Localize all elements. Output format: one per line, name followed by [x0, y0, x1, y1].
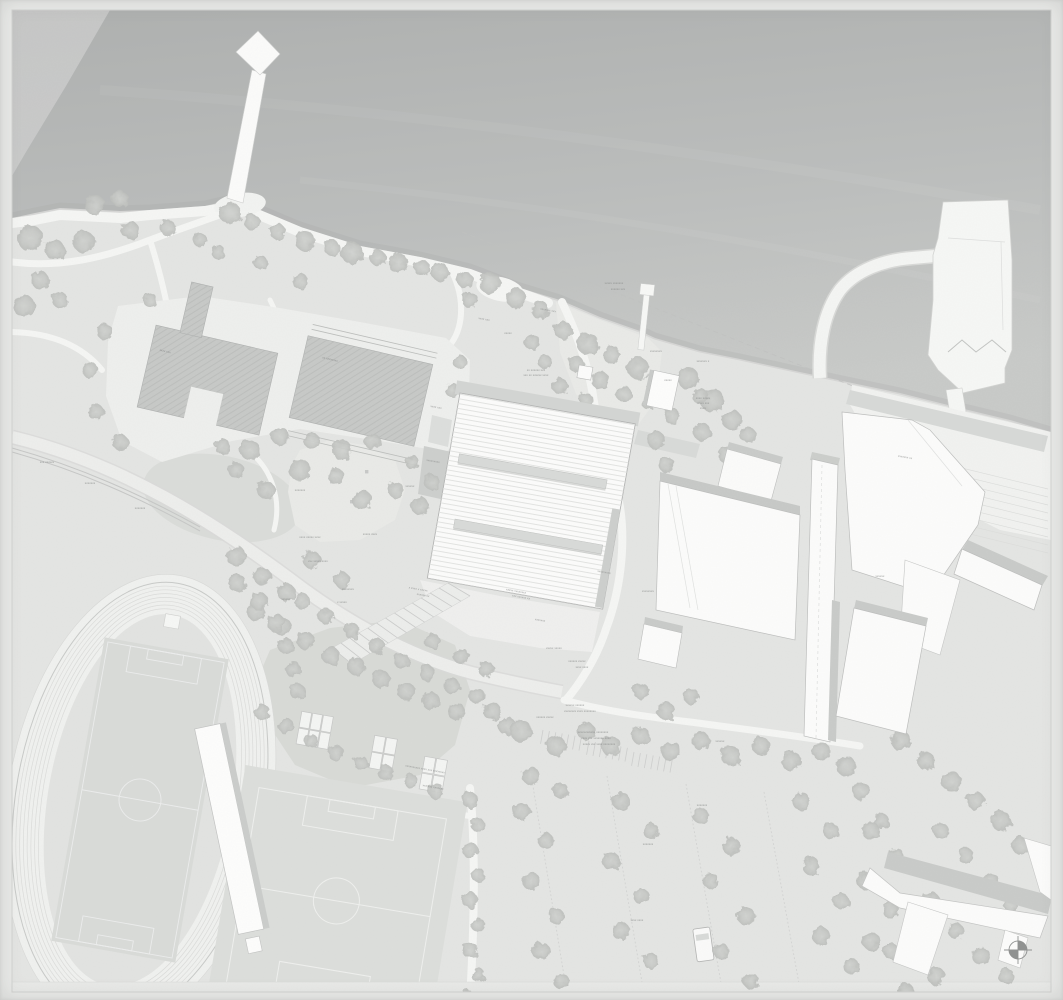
site-plan-svg: xxxxx xxxxxxxxxxxxx xxxxxxxxxx xxxxxxx x…	[0, 0, 1063, 1000]
paper-grain	[12, 10, 1051, 992]
site-plan: xxxxx xxxxxxxxxxxxx xxxxxxxxxx xxxxxxx x…	[0, 0, 1063, 1000]
